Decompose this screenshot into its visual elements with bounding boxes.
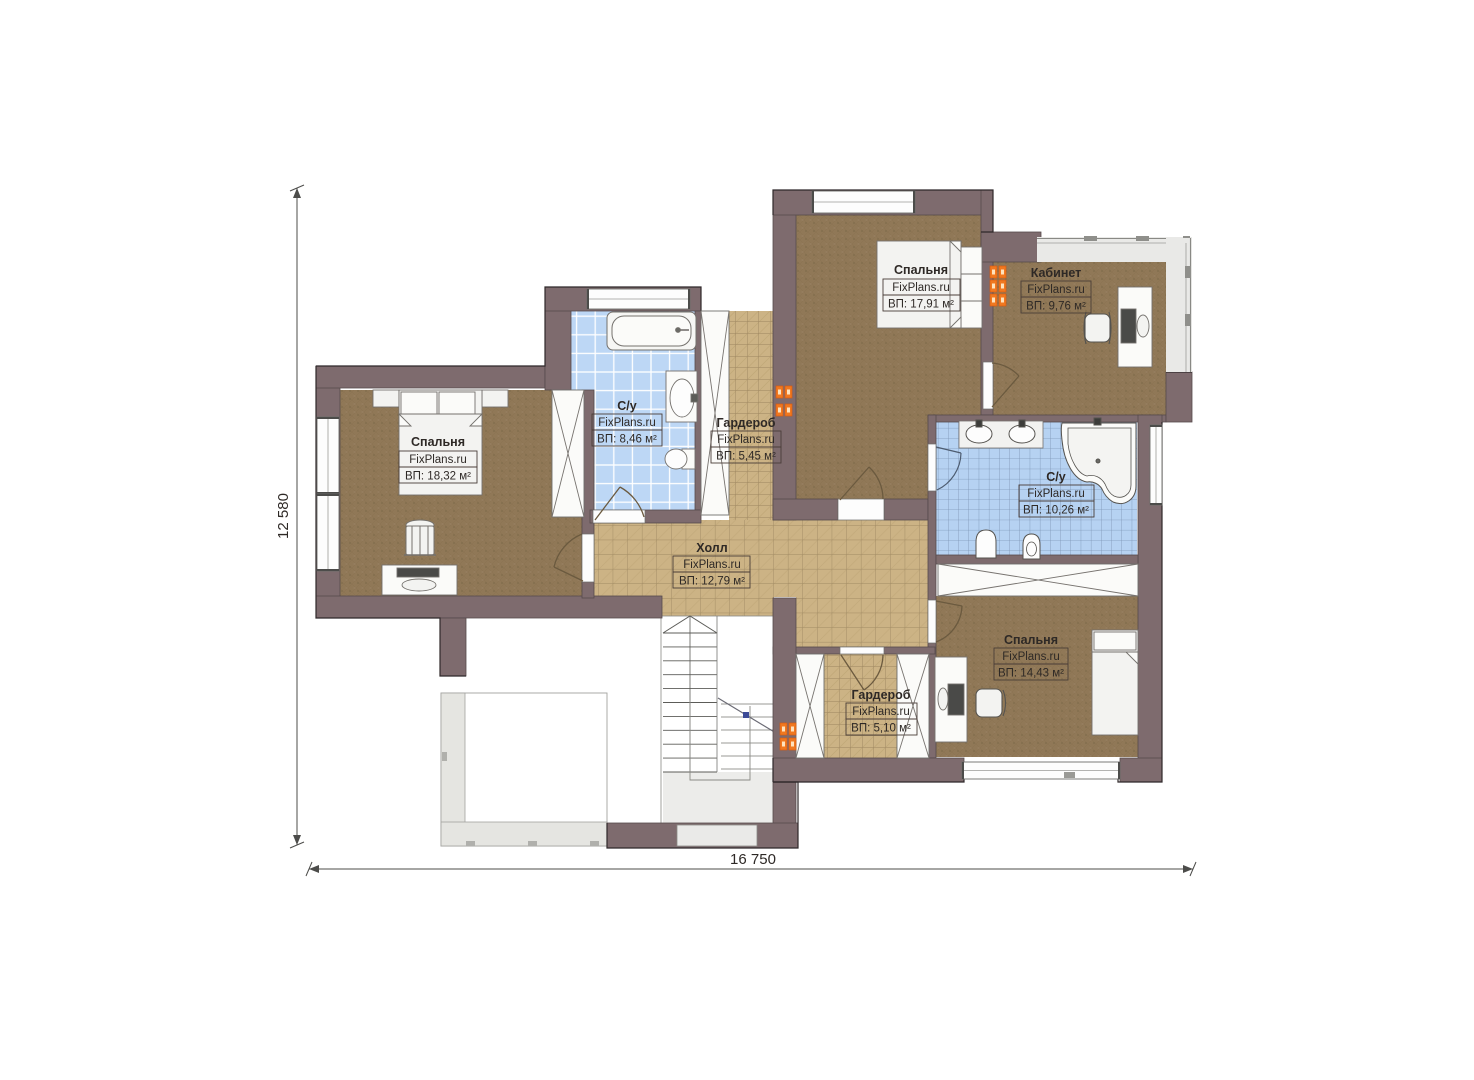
svg-text:FixPlans.ru: FixPlans.ru (892, 282, 950, 294)
svg-text:FixPlans.ru: FixPlans.ru (1002, 651, 1060, 663)
svg-text:Гардероб: Гардероб (851, 688, 910, 702)
svg-text:Спальня: Спальня (894, 263, 948, 277)
svg-text:ВП: 17,91 м²: ВП: 17,91 м² (888, 299, 954, 311)
svg-text:FixPlans.ru: FixPlans.ru (409, 454, 467, 466)
svg-text:ВП: 14,43 м²: ВП: 14,43 м² (998, 668, 1064, 680)
svg-text:С/у: С/у (1046, 470, 1066, 484)
svg-text:Кабинет: Кабинет (1031, 266, 1082, 280)
svg-text:FixPlans.ru: FixPlans.ru (717, 434, 775, 446)
svg-text:FixPlans.ru: FixPlans.ru (598, 417, 656, 429)
svg-text:FixPlans.ru: FixPlans.ru (683, 559, 741, 571)
svg-text:ВП: 5,10 м²: ВП: 5,10 м² (851, 723, 911, 735)
svg-text:Спальня: Спальня (1004, 633, 1058, 647)
svg-text:ВП: 10,26 м²: ВП: 10,26 м² (1023, 505, 1089, 517)
svg-text:ВП: 18,32 м²: ВП: 18,32 м² (405, 471, 471, 483)
svg-text:Спальня: Спальня (411, 435, 465, 449)
svg-text:ВП: 12,79 м²: ВП: 12,79 м² (679, 576, 745, 588)
svg-text:16 750: 16 750 (730, 851, 776, 868)
svg-text:Гардероб: Гардероб (716, 416, 775, 430)
svg-text:ВП: 8,46 м²: ВП: 8,46 м² (597, 434, 657, 446)
svg-text:FixPlans.ru: FixPlans.ru (852, 706, 910, 718)
svg-text:ВП: 9,76 м²: ВП: 9,76 м² (1026, 301, 1086, 313)
svg-text:FixPlans.ru: FixPlans.ru (1027, 284, 1085, 296)
svg-text:ВП: 5,45 м²: ВП: 5,45 м² (716, 451, 776, 463)
svg-text:12 580: 12 580 (275, 493, 292, 539)
svg-text:FixPlans.ru: FixPlans.ru (1027, 488, 1085, 500)
svg-text:Холл: Холл (696, 541, 727, 555)
svg-text:С/у: С/у (617, 399, 637, 413)
